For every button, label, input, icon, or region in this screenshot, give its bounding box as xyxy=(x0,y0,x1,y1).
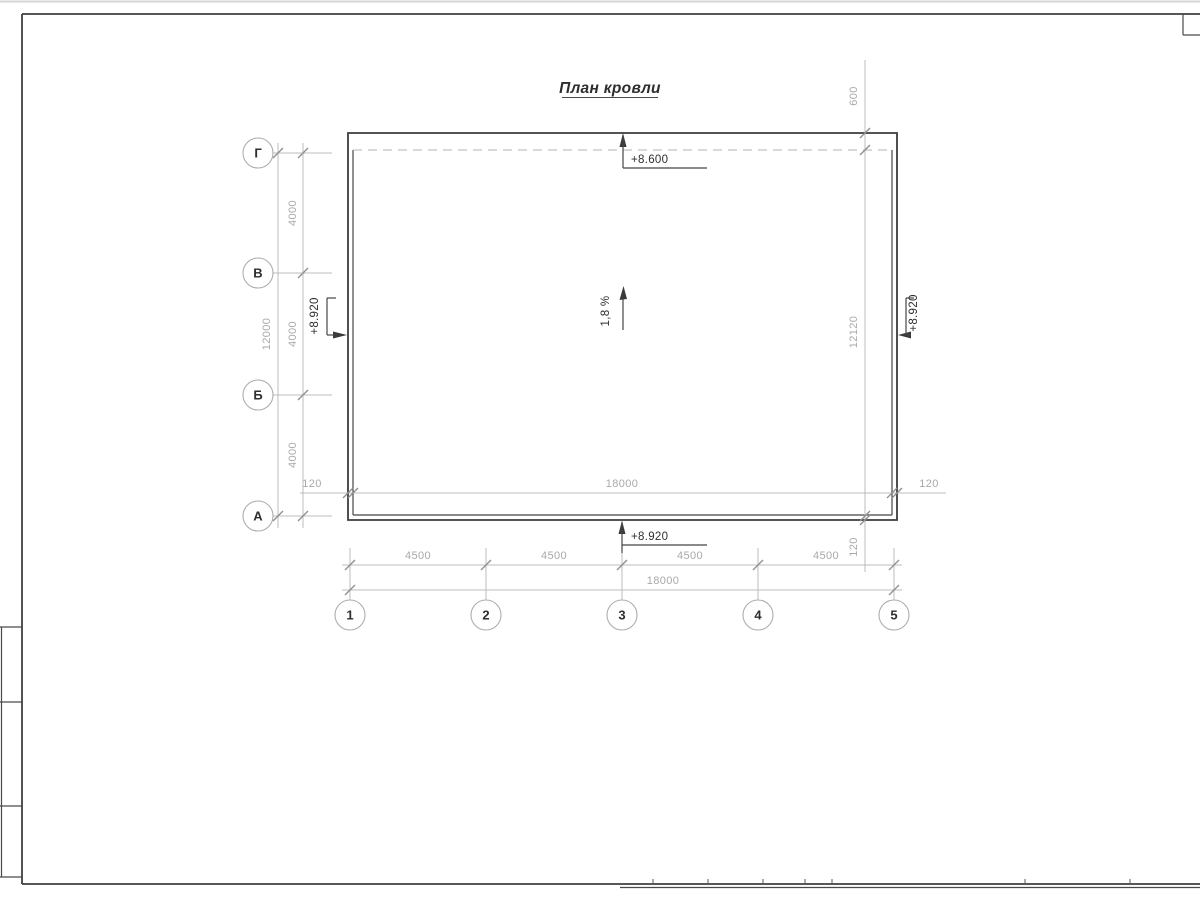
axis-label: В xyxy=(253,266,262,281)
slope-marker: 1,8 % xyxy=(600,286,627,330)
axis-label: 2 xyxy=(482,608,489,623)
axis-label: 5 xyxy=(890,608,897,623)
elevation-marks: +8.600 +8.920 +8.920 +8.920 xyxy=(309,133,920,553)
drawing-title: План кровли xyxy=(559,80,661,98)
dim-text: 4500 xyxy=(405,550,431,562)
inner-width-dimension: 120 18000 120 xyxy=(300,478,946,498)
axis-label: Б xyxy=(253,388,262,403)
drawing-sheet: План кровли Г В Б А 12000 4000 4 xyxy=(0,0,1200,900)
dim-text-right-top: 600 xyxy=(848,86,860,106)
sheet-frame xyxy=(0,2,1200,888)
dim-text: 4500 xyxy=(541,550,567,562)
dim-text-bottom-total: 18000 xyxy=(647,575,680,587)
col-axes: 1 2 3 4 5 xyxy=(335,600,909,630)
elevation-arrow-icon xyxy=(333,332,347,339)
axis-label: Г xyxy=(254,146,262,161)
axis-label: 3 xyxy=(618,608,625,623)
dim-text: 4500 xyxy=(677,550,703,562)
dim-text: 4000 xyxy=(287,442,299,468)
axis-label: 4 xyxy=(754,608,762,623)
slope-arrow-icon xyxy=(620,286,628,300)
left-margin-boxes xyxy=(0,627,22,877)
dim-text: 4000 xyxy=(287,200,299,226)
dim-text-right-bottom: 120 xyxy=(848,537,860,557)
dim-text-right-total: 12120 xyxy=(848,316,860,349)
elevation-text: +8.920 xyxy=(631,531,668,543)
dim-text-left-offset: 120 xyxy=(302,478,322,490)
axis-label: 1 xyxy=(346,608,353,623)
dim-text-inner-width: 18000 xyxy=(606,478,639,490)
dim-text-right-offset: 120 xyxy=(919,478,939,490)
bottom-dimensions: 4500 4500 4500 4500 18000 xyxy=(342,548,902,600)
right-dimensions: 600 12120 120 xyxy=(848,60,870,572)
slope-text: 1,8 % xyxy=(600,296,612,327)
elevation-text: +8.920 xyxy=(908,294,920,331)
dim-text: 4000 xyxy=(287,321,299,347)
elevation-mark-right: +8.920 xyxy=(898,294,920,338)
dim-text-left-total: 12000 xyxy=(261,318,273,351)
left-dimensions: 12000 4000 4000 4000 xyxy=(261,143,308,528)
page-title: План кровли xyxy=(559,80,661,97)
elevation-text: +8.600 xyxy=(631,154,668,166)
roof-plan-drawing: План кровли Г В Б А 12000 4000 4 xyxy=(0,0,1200,900)
elevation-mark-top: +8.600 xyxy=(620,133,708,168)
elevation-mark-bottom: +8.920 xyxy=(619,521,708,554)
axis-label: А xyxy=(253,509,263,524)
dim-text: 4500 xyxy=(813,550,839,562)
elevation-mark-left: +8.920 xyxy=(309,297,347,338)
elevation-text: +8.920 xyxy=(309,297,321,334)
